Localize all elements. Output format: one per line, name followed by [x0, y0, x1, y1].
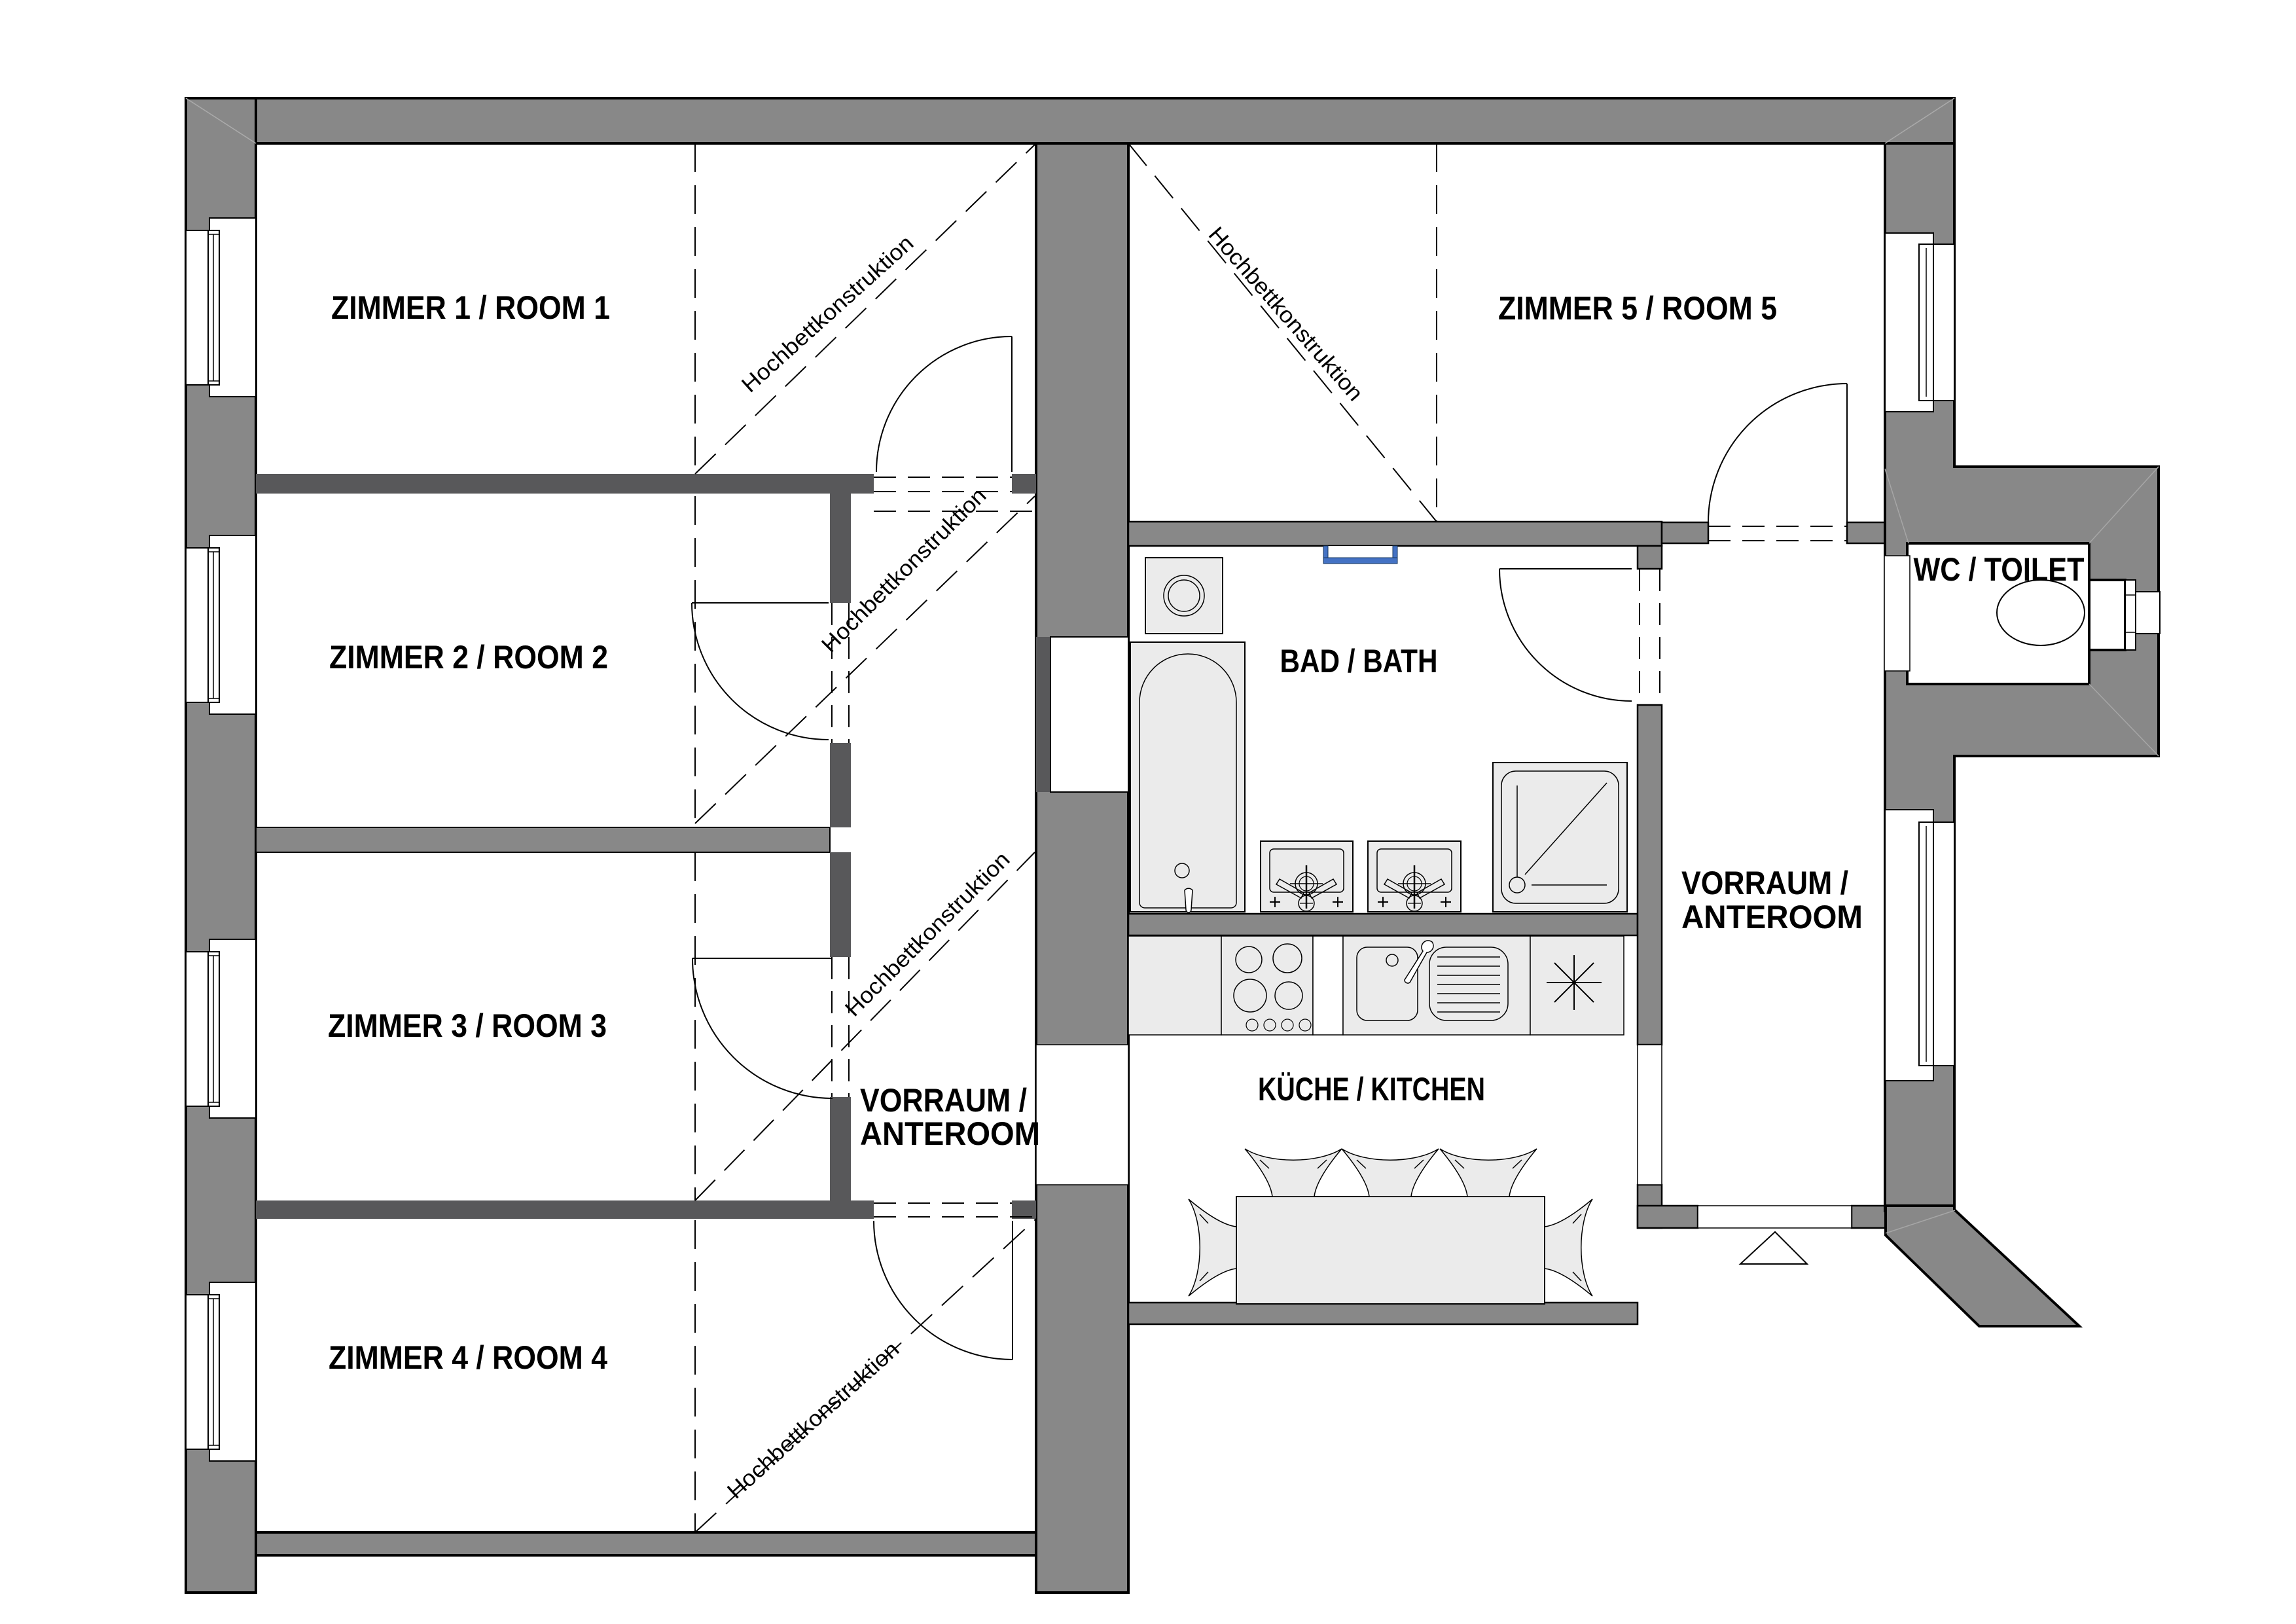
svg-text:ZIMMER 5 / ROOM 5: ZIMMER 5 / ROOM 5 [1498, 290, 1777, 327]
svg-text:ANTEROOM: ANTEROOM [1681, 899, 1863, 935]
svg-text:VORRAUM /: VORRAUM / [860, 1082, 1027, 1119]
svg-text:ZIMMER 4 / ROOM 4: ZIMMER 4 / ROOM 4 [329, 1339, 607, 1376]
svg-text:KÜCHE / KITCHEN: KÜCHE / KITCHEN [1258, 1071, 1485, 1108]
svg-text:ZIMMER 2 / ROOM 2: ZIMMER 2 / ROOM 2 [329, 639, 608, 676]
svg-text:ZIMMER 3 / ROOM 3: ZIMMER 3 / ROOM 3 [328, 1007, 607, 1044]
svg-text:WC / TOILET: WC / TOILET [1914, 551, 2085, 588]
svg-text:VORRAUM /: VORRAUM / [1681, 865, 1848, 901]
svg-text:ZIMMER 1 / ROOM 1: ZIMMER 1 / ROOM 1 [331, 289, 610, 326]
svg-text:ANTEROOM: ANTEROOM [860, 1115, 1040, 1152]
svg-text:BAD / BATH: BAD / BATH [1280, 643, 1438, 679]
